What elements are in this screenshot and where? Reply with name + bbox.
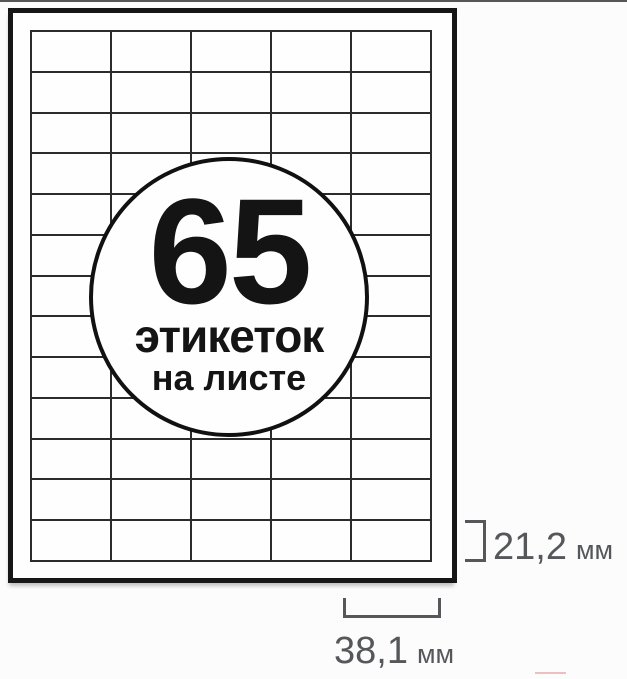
badge-caption-line2: на листе: [93, 360, 365, 396]
label-cell: [352, 114, 430, 153]
label-cell: [192, 440, 270, 479]
label-cell: [272, 521, 350, 560]
label-cell: [112, 73, 190, 112]
label-cell: [112, 521, 190, 560]
label-cell: [112, 440, 190, 479]
width-dimension-value: 38,1: [334, 632, 408, 670]
label-cell: [352, 480, 430, 519]
height-dimension-bracket: [465, 520, 486, 562]
label-cell: [352, 73, 430, 112]
label-cell: [112, 480, 190, 519]
top-edge-line: [0, 0, 627, 2]
label-cell: [32, 521, 110, 560]
label-cell: [192, 32, 270, 71]
label-cell: [32, 399, 110, 438]
label-cell: [272, 480, 350, 519]
label-cell: [352, 440, 430, 479]
height-dimension-unit: мм: [576, 537, 613, 564]
height-dimension-value: 21,2: [493, 528, 567, 566]
label-cell: [352, 399, 430, 438]
label-cell: [192, 73, 270, 112]
label-cell: [192, 521, 270, 560]
height-dimension-label: 21,2 мм: [493, 528, 613, 566]
label-cell: [272, 440, 350, 479]
label-cell: [272, 73, 350, 112]
label-cell: [32, 114, 110, 153]
bottom-edge-artifact: [535, 672, 566, 674]
labels-count-badge: 65 этикеток на листе: [89, 157, 369, 437]
label-cell: [112, 32, 190, 71]
label-cell: [112, 114, 190, 153]
label-cell: [32, 73, 110, 112]
badge-count: 65: [93, 176, 365, 326]
width-dimension-bracket: [343, 598, 441, 618]
label-cell: [272, 32, 350, 71]
label-cell: [32, 480, 110, 519]
label-cell: [192, 114, 270, 153]
label-sheet-diagram: 65 этикеток на листе 21,2 мм 38,1 мм: [0, 0, 627, 679]
badge-caption-line1: этикеток: [93, 313, 365, 359]
label-cell: [32, 32, 110, 71]
label-cell: [32, 440, 110, 479]
label-cell: [352, 521, 430, 560]
width-dimension-label: 38,1 мм: [334, 632, 454, 670]
label-cell: [192, 480, 270, 519]
label-cell: [352, 32, 430, 71]
label-cell: [272, 114, 350, 153]
width-dimension-unit: мм: [417, 641, 454, 668]
